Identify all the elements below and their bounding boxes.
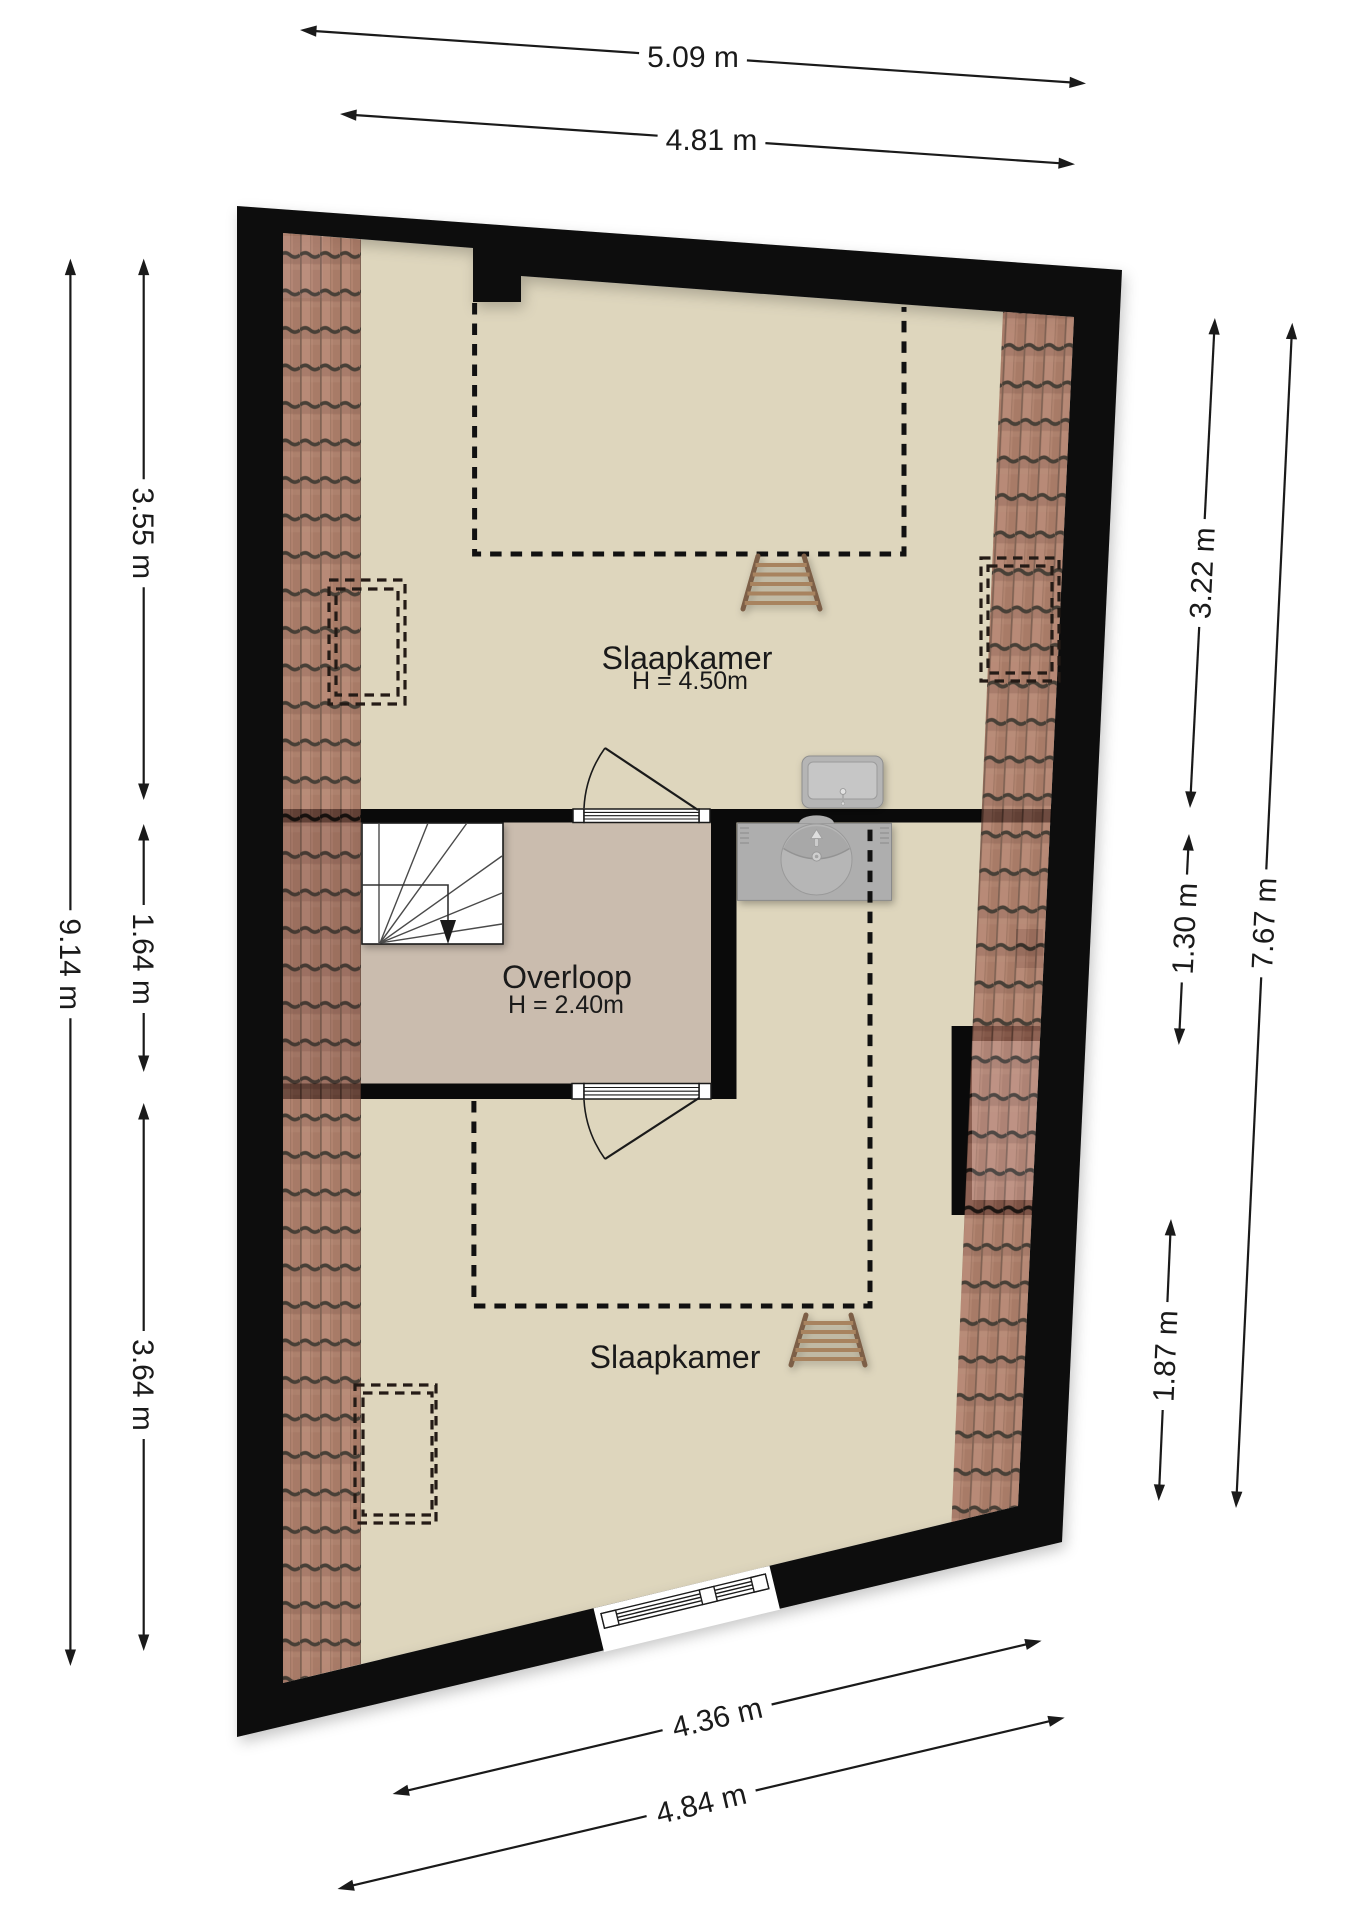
svg-text:3.55 m: 3.55 m xyxy=(126,487,159,579)
svg-text:1.64 m: 1.64 m xyxy=(126,913,159,1005)
svg-text:4.81 m: 4.81 m xyxy=(666,124,758,157)
svg-text:9.14 m: 9.14 m xyxy=(53,918,86,1010)
svg-text:3.22 m: 3.22 m xyxy=(1184,526,1222,619)
svg-text:7.67 m: 7.67 m xyxy=(1246,877,1283,970)
svg-text:H = 4.50m: H = 4.50m xyxy=(632,667,748,695)
svg-text:5.09 m: 5.09 m xyxy=(647,41,739,74)
svg-text:Slaapkamer: Slaapkamer xyxy=(590,1339,761,1375)
svg-text:H = 2.40m: H = 2.40m xyxy=(508,991,624,1019)
svg-text:1.30 m: 1.30 m xyxy=(1167,882,1204,975)
svg-text:Overloop: Overloop xyxy=(502,959,632,995)
svg-text:3.64 m: 3.64 m xyxy=(126,1339,159,1431)
svg-text:1.87 m: 1.87 m xyxy=(1148,1310,1185,1403)
